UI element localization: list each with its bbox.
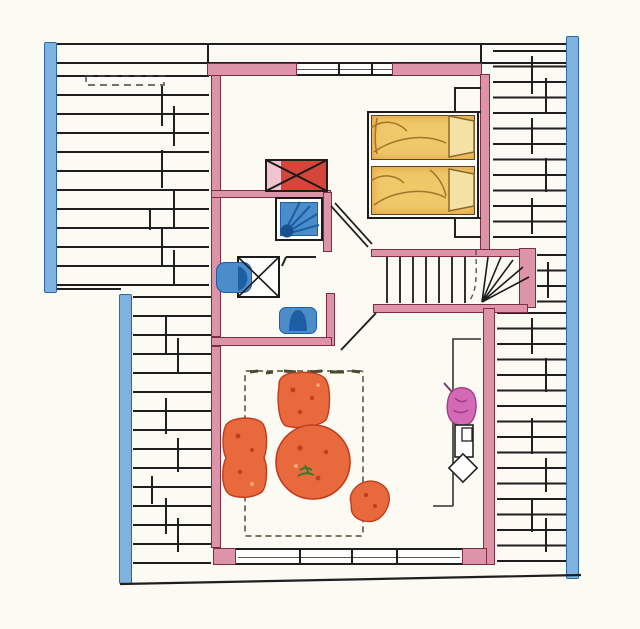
washbasin-bowl [238, 266, 247, 291]
living-room-door-leaf [341, 313, 376, 350]
toilet-bowl [289, 310, 307, 331]
bed-sketch-lines [371, 118, 446, 205]
sofa [223, 418, 267, 497]
sketch-overlay [0, 0, 640, 629]
round-table [276, 425, 350, 499]
bedroom-door-leaf [331, 203, 372, 247]
floor-plant [444, 383, 476, 425]
side-chair [350, 481, 389, 521]
roof-window [86, 76, 164, 85]
floor-plan-canvas [0, 0, 640, 629]
bathroom-door-leaf [282, 257, 316, 266]
shower-drain [281, 225, 294, 238]
stair-treads [387, 257, 465, 303]
chimney-cross [266, 160, 327, 191]
armchair [278, 372, 329, 427]
bed-pillows [449, 116, 474, 211]
staircase [387, 250, 529, 303]
stair-winders [482, 257, 529, 302]
shower-drain-fan [281, 202, 320, 238]
roof-edge-bottom [120, 575, 581, 584]
stair-walking-line [470, 250, 476, 300]
rafter-ticks [150, 56, 548, 552]
bed-niche-walls [455, 88, 481, 237]
